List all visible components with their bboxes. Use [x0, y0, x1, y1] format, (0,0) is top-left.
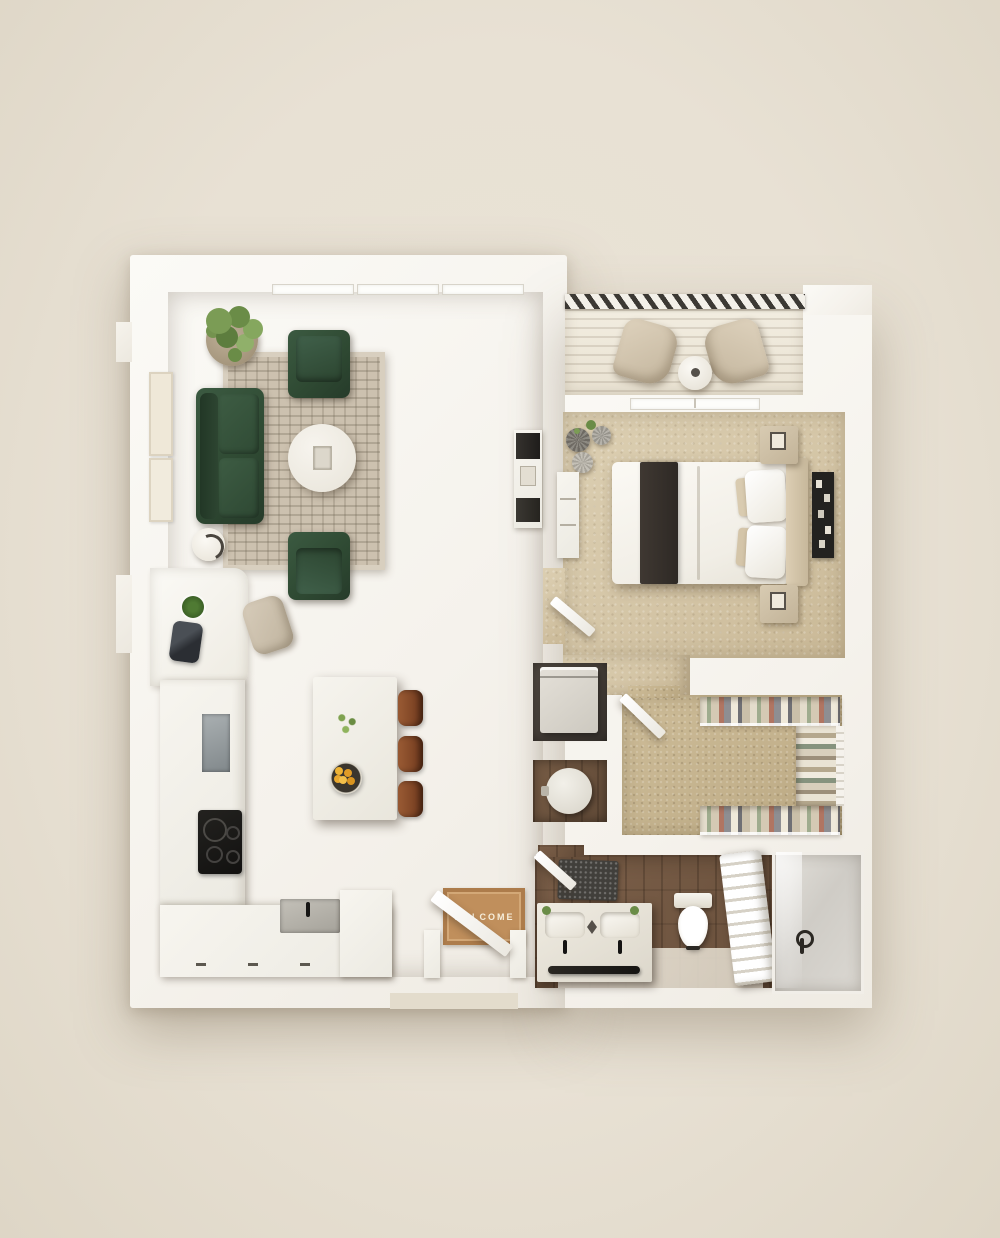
kitchen-sink	[280, 899, 340, 933]
island-plant-sprig-icon	[334, 710, 360, 736]
bar-stool	[398, 690, 423, 726]
dresser-drawer-lines	[560, 498, 576, 500]
burner-icon	[203, 818, 227, 842]
woven-planter-icon	[572, 452, 593, 473]
cabinet-handle-icon	[300, 963, 310, 966]
bar-stool	[398, 736, 423, 772]
fruit-bowl	[330, 762, 362, 794]
faucet-icon	[618, 940, 622, 954]
cabinet-handle-icon	[248, 963, 258, 966]
table-decor-books	[313, 446, 332, 470]
towel-bar	[548, 966, 640, 974]
pillow	[745, 525, 788, 579]
sink-basin	[600, 912, 640, 938]
cabinet-handle-icon	[196, 963, 206, 966]
burner-icon	[226, 850, 240, 864]
entry-recess	[390, 993, 518, 1009]
glass-highlight	[776, 852, 802, 988]
sofa-seat-cushion	[219, 458, 259, 518]
kitchen-island	[313, 677, 397, 820]
sink-basin	[545, 912, 585, 938]
console-dark-cabinet	[516, 498, 540, 522]
window	[442, 284, 524, 295]
door-frame-post	[510, 930, 526, 978]
closet-doorway	[628, 686, 680, 698]
nightstand-frame-decor	[770, 592, 786, 610]
window	[357, 284, 439, 295]
armchair-cushion	[296, 336, 342, 382]
vanity-plant-icon	[630, 906, 639, 915]
duvet-fold-line	[697, 466, 700, 580]
console-decor	[520, 466, 536, 486]
cup-icon	[691, 368, 700, 377]
kitchen-peninsula	[340, 890, 392, 977]
laptop-icon	[168, 620, 203, 664]
floor-plan-canvas: WELCOME	[0, 0, 1000, 1238]
shower-valve-icon	[796, 930, 814, 948]
pillow	[744, 469, 788, 524]
door-frame-post	[424, 930, 440, 978]
clothes-rack-right	[796, 726, 840, 806]
balcony-railing	[565, 294, 805, 309]
plant-leaves-icon	[206, 308, 232, 334]
balcony-right-ledge	[803, 285, 872, 315]
woven-planter-icon	[566, 428, 590, 452]
washer-lid-line	[540, 676, 598, 678]
kitchen-faucet-icon	[306, 902, 310, 917]
nightstand-frame-decor	[770, 432, 786, 450]
window	[272, 284, 354, 295]
faucet-icon	[563, 940, 567, 954]
bed-dark-runner	[640, 462, 678, 584]
bar-stool	[398, 781, 423, 817]
wall-notch	[116, 575, 132, 653]
fruit-icon	[335, 767, 343, 775]
bedroom-dresser	[557, 472, 579, 558]
sofa-seat-cushion	[219, 394, 259, 454]
toilet-drain-icon	[686, 946, 700, 950]
burner-icon	[206, 846, 223, 863]
wall-frame	[149, 458, 173, 522]
wall-frame	[149, 372, 173, 456]
art-speckles	[816, 480, 822, 488]
sofa-back-cushion	[200, 393, 218, 519]
water-heater-icon	[546, 768, 592, 814]
closet-shelf-unit	[836, 726, 844, 806]
armchair-cushion	[296, 548, 342, 594]
desk-plant-icon	[182, 596, 204, 618]
oven-glass-panel	[202, 714, 230, 772]
console-dark-cabinet	[516, 433, 540, 459]
burner-icon	[226, 826, 240, 840]
heater-valve-icon	[541, 786, 549, 796]
headboard	[786, 458, 808, 586]
planter-greens-icon	[586, 420, 596, 430]
vanity-plant-icon	[542, 906, 551, 915]
clothes-rack-bottom	[700, 806, 840, 835]
wall-notch	[116, 322, 132, 362]
clothes-rack-top	[700, 697, 840, 726]
slider-divider	[694, 398, 696, 408]
woven-planter-icon	[592, 426, 611, 445]
